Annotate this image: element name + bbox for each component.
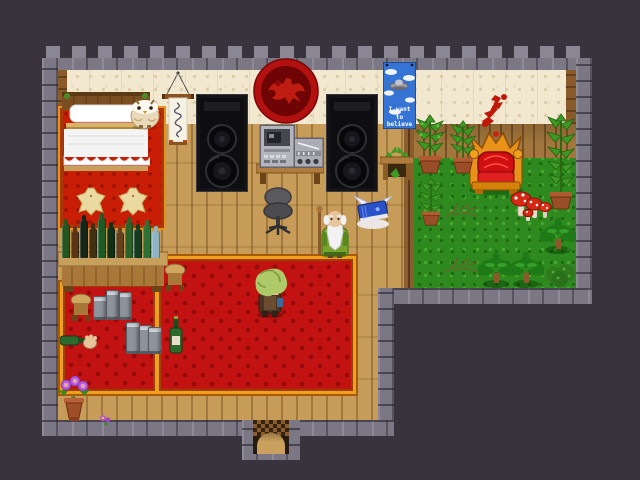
bottle xyxy=(62,224,70,258)
winged-book-monster[interactable] xyxy=(352,194,394,230)
bottle xyxy=(89,228,97,258)
wall-emblem xyxy=(252,57,320,125)
hanging-scroll xyxy=(162,70,194,150)
potted-plant xyxy=(412,112,448,174)
bottle xyxy=(116,232,124,258)
wall-mid-right xyxy=(378,288,394,436)
palm-plant xyxy=(508,251,544,289)
stool[interactable] xyxy=(164,262,186,292)
wine-bottle xyxy=(166,316,186,354)
can xyxy=(148,327,162,354)
wall-right xyxy=(576,58,592,304)
flower-pot xyxy=(58,376,90,422)
bottle xyxy=(98,218,106,258)
dry-twigs xyxy=(444,200,480,220)
potted-plant xyxy=(446,118,480,174)
stereo-desk[interactable] xyxy=(256,124,324,186)
fallen-bottle-and-hand xyxy=(60,328,98,352)
bottle xyxy=(71,231,79,258)
wall-left xyxy=(42,58,58,436)
bottle xyxy=(80,220,88,258)
potted-plant-small xyxy=(414,176,448,226)
bottle xyxy=(152,231,160,258)
palm-plant xyxy=(540,216,576,256)
wall-bottom xyxy=(42,420,394,436)
bottle xyxy=(134,229,142,258)
dry-twigs xyxy=(444,255,480,275)
bottle-row xyxy=(62,212,164,258)
wall-garden-bottom xyxy=(378,288,592,304)
door-arch[interactable] xyxy=(257,433,285,454)
can xyxy=(126,322,140,354)
border-flower xyxy=(98,412,112,426)
can xyxy=(106,290,119,320)
speaker-left xyxy=(196,94,248,192)
stool[interactable] xyxy=(70,292,92,322)
side-table xyxy=(380,146,414,184)
owl-npc[interactable] xyxy=(128,96,162,130)
bottle xyxy=(107,227,115,258)
wall-splatter xyxy=(478,92,510,128)
old-man-npc[interactable] xyxy=(314,202,350,258)
bush xyxy=(544,257,576,287)
speaker-right xyxy=(326,94,378,192)
can xyxy=(93,296,107,320)
hero-character[interactable] xyxy=(250,266,290,318)
office-chair[interactable] xyxy=(260,186,296,236)
bottle xyxy=(143,225,151,258)
game-viewport: I want to believe xyxy=(0,0,640,480)
bottle xyxy=(125,222,133,258)
can xyxy=(119,292,132,320)
